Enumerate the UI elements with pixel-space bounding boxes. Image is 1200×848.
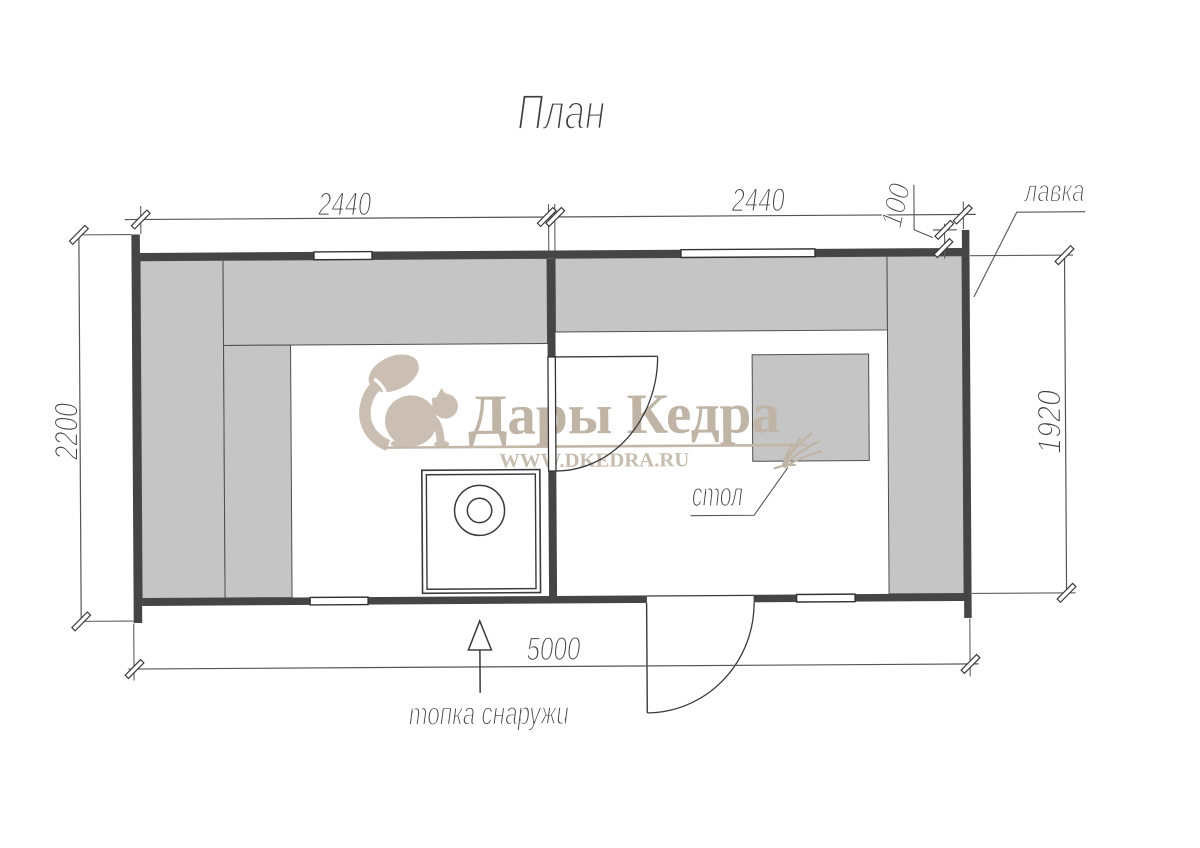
svg-text:Дары Кедра: Дары Кедра bbox=[468, 382, 780, 447]
svg-text:5000: 5000 bbox=[526, 630, 581, 667]
svg-text:1920: 1920 bbox=[1030, 389, 1067, 454]
svg-text:стол: стол bbox=[692, 476, 743, 514]
svg-text:100: 100 bbox=[875, 180, 917, 230]
svg-text:топка снаружи: топка снаружи bbox=[409, 695, 569, 732]
svg-text:WWW.DKEDRA.RU: WWW.DKEDRA.RU bbox=[499, 449, 689, 472]
svg-text:лавка: лавка bbox=[1023, 173, 1085, 208]
svg-text:2440: 2440 bbox=[731, 181, 785, 218]
svg-text:2200: 2200 bbox=[47, 402, 84, 460]
svg-text:План: План bbox=[517, 84, 605, 141]
svg-text:2440: 2440 bbox=[317, 185, 371, 222]
